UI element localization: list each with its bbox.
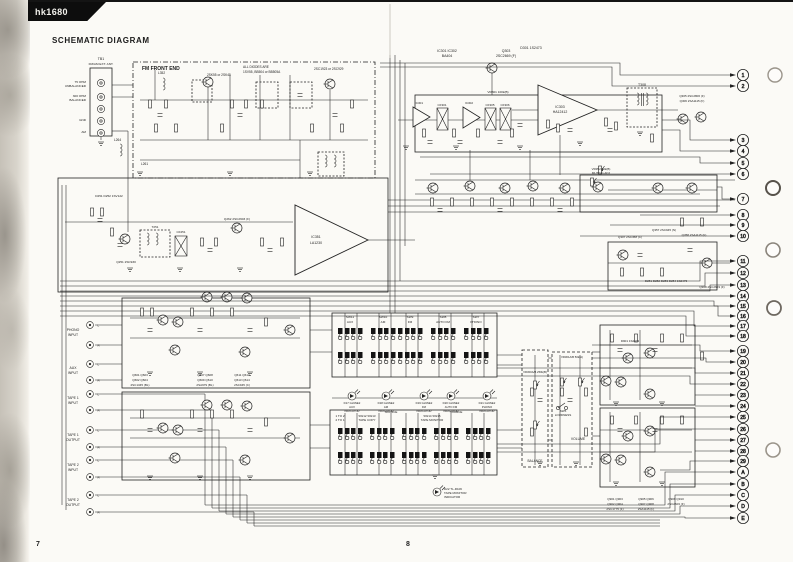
label-inputs-3-r: R <box>98 446 101 450</box>
label-switches-function-3-name: AUTO FM <box>436 320 450 324</box>
connector-label-16: 16 <box>740 314 746 320</box>
connector-label-11: 11 <box>740 259 745 265</box>
label-switches-copy_name: TAPE COPY <box>359 418 376 422</box>
label-am_section-diodes: D251 D252 1SV122 <box>95 194 123 198</box>
label-detector-muting_2: MUTING ADJ <box>592 171 611 175</box>
label-inputs-3-l: L <box>98 429 100 433</box>
connector-label-20: 20 <box>740 360 746 366</box>
components-layer <box>87 63 782 515</box>
page-number-left: 7 <box>36 541 40 548</box>
label-if_section-filters-1: CF305 <box>485 103 494 107</box>
label-mpx-q_out_1: Q305 2SC2806 (F) <box>679 94 704 98</box>
label-if_section-q_part: 2SC2669 (F) <box>496 54 516 58</box>
label-tone_amp-groups-1-l3: 2SA1115 (F) <box>638 507 655 511</box>
connector-label-D: D <box>741 504 745 510</box>
label-controls-balance: BALANCE <box>528 459 543 463</box>
connector-label-29: 29 <box>740 459 746 465</box>
connector-label-26: 26 <box>740 427 746 433</box>
label-inputs-4-r: R <box>98 476 101 480</box>
label-inputs-4-n1: TAPE 2 <box>67 463 79 467</box>
punch-hole <box>766 443 780 457</box>
label-mpx-q_out_2: Q306 2SA1115 (F) <box>680 99 705 103</box>
label-if_section-filters-2: CF306 <box>500 103 509 107</box>
label-switches-tape_mark_2: 2 TO 1 <box>335 418 344 422</box>
label-controls-volume: VOLUME <box>571 437 586 441</box>
label-inputs-2-r: R <box>98 409 101 413</box>
label-preamp-groups-1-l1: Q607 Q608 <box>197 373 213 377</box>
label-inputs-3-n1: TAPE 1 <box>67 433 79 437</box>
label-controls-vr_volume: VR301A/B 50k(A) <box>561 355 583 359</box>
label-antenna-ref: TB1 <box>98 57 104 61</box>
label-am_section-q2: Q262 2SC2603 (F) <box>224 217 250 221</box>
connector-label-21: 21 <box>740 371 746 377</box>
label-switches-function-0-ref: SW11 <box>346 315 354 319</box>
label-switches-monitor_name: TAPE MONITOR <box>421 418 444 422</box>
punch-hole <box>766 243 780 257</box>
label-switches-function-1-name: AM <box>381 320 386 324</box>
label-preamp-groups-2-l3: 2SC945 (C) <box>234 383 250 387</box>
label-tone_amp-groups-0-l1: Q901 Q903 <box>607 497 623 501</box>
label-if_section-vr: VR301 100k(B) <box>487 90 508 94</box>
wires-layer <box>60 4 735 526</box>
punch-hole <box>767 301 781 315</box>
scanned-schematic-page: hk1680 SCHEMATIC DIAGRAM FM FRONT END2SK… <box>0 0 793 562</box>
label-antenna-name: FM/AM EXT. ANT. <box>89 62 114 66</box>
label-inputs-4-l: L <box>98 459 100 463</box>
label-preamp-groups-2-l2: Q613 Q614 <box>234 378 250 382</box>
label-indicators-4-n2: INDICATOR <box>479 409 494 413</box>
connector-label-18: 18 <box>740 334 746 340</box>
label-switches-function-2-name: FM <box>408 320 413 324</box>
label-if_section-ic2: IC302 <box>465 101 473 105</box>
connector-label-17: 17 <box>740 324 746 330</box>
label-tone_amp-groups-0-l3: 2SC1775 (F) <box>606 507 623 511</box>
label-am_section-q1: Q251 2SC930 <box>116 260 136 264</box>
antenna-terminal-icon <box>97 79 104 86</box>
label-inputs-5-n1: TAPE 2 <box>67 498 79 502</box>
label-preamp-groups-0-l3: 2SC1345 (BL) <box>130 383 149 387</box>
label-antenna-terminals-1-l2: BALANCED <box>69 98 86 102</box>
connector-label-3: 3 <box>742 138 745 144</box>
opamp-triangle-icon <box>295 205 368 275</box>
label-inputs-2-l: L <box>98 393 100 397</box>
label-preamp-groups-2-l1: Q611 Q612 <box>234 373 250 377</box>
connector-label-12: 12 <box>740 271 746 277</box>
label-front_end-coil_2: L264 <box>114 138 121 142</box>
label-inputs-1-n2: INPUT <box>68 371 78 375</box>
connector-label-4: 4 <box>742 149 745 155</box>
label-inputs-1-r: R <box>98 379 101 383</box>
label-tone_amp-d: D901 1S2473 <box>621 339 640 343</box>
connector-label-2: 2 <box>742 84 745 90</box>
label-tone_amp-groups-1-l2: Q907 Q908 <box>638 502 654 506</box>
label-preamp-groups-0-l2: Q602 Q604 <box>132 378 148 382</box>
label-antenna-terminals-4-l1: AM <box>81 130 86 134</box>
label-indicators-1-n2: INDICATOR <box>378 409 393 413</box>
connector-label-14: 14 <box>740 294 746 300</box>
connector-label-C: C <box>741 493 745 499</box>
label-inputs-0-r: R <box>98 344 101 348</box>
label-fm_if-ic_part: LA1230 <box>310 241 322 245</box>
label-detector-q4: Q358 2SA1115 (F) <box>682 233 707 237</box>
label-controls-vr_balance: VR300A/B 250k(B) <box>523 370 547 374</box>
label-antenna-terminals-3-l1: GND <box>79 118 87 122</box>
connector-label-13: 13 <box>740 283 746 289</box>
connector-label-8: 8 <box>742 213 745 219</box>
label-tone_amp-groups-2-l1: Q909 Q910 <box>668 497 684 501</box>
connector-label-5: 5 <box>742 161 745 167</box>
label-indicators-2-n2: INDICATOR <box>416 409 431 413</box>
label-am_section-t1: T251 <box>152 225 159 229</box>
label-antenna-terminals-0-l2: UNBALANCED <box>65 84 87 88</box>
label-detector-q1: Q307 2SC458 (C) <box>618 235 642 239</box>
label-if_section-heading_1: IC301 IC302 <box>437 49 457 53</box>
opamp-triangle-icon <box>413 107 430 127</box>
connector-label-27: 27 <box>740 438 746 444</box>
label-if_section-q: Q303 <box>502 49 511 53</box>
label-indicators-5-n2: INDICATOR <box>444 495 461 499</box>
antenna-terminal-icon <box>97 105 104 112</box>
label-fm_if-ic_ref: IC351 <box>311 235 320 239</box>
label-if_section-ic1: IC301 <box>415 101 423 105</box>
connector-label-28: 28 <box>740 449 746 455</box>
label-preamp-groups-1-l3: 2SA979 (BL) <box>196 383 213 387</box>
connector-label-25: 25 <box>740 415 746 421</box>
label-tone_amp-groups-0-l2: Q902 Q904 <box>607 502 623 506</box>
label-if_section-filters-0: CF301 <box>437 103 446 107</box>
connector-label-7: 7 <box>742 197 745 203</box>
label-switches-loudness_name: LOUDNESS <box>555 413 572 417</box>
label-inputs-4-n2: INPUT <box>68 468 78 472</box>
label-switches-function-0-name: AUX <box>347 320 353 324</box>
connector-label-22: 22 <box>740 382 746 388</box>
label-inputs-0-n1: PHONO <box>67 328 80 332</box>
label-inputs-5-l: L <box>98 494 100 498</box>
label-switches-function-2-ref: SW9 <box>407 315 414 319</box>
label-preamp-groups-0-l1: Q601 Q603 <box>132 373 148 377</box>
label-front_end-diode_note_1: ALL DIODES ARE <box>243 65 269 69</box>
label-inputs-1-n1: AUX <box>70 366 78 370</box>
label-inputs-0-n2: INPUT <box>68 333 78 337</box>
label-am_section-filter: CF251 <box>176 230 185 234</box>
connector-label-19: 19 <box>740 349 746 355</box>
label-inputs-0-l: L <box>98 324 100 328</box>
label-if_section-heading_2: BA404 <box>442 54 453 58</box>
connector-label-10: 10 <box>740 234 746 240</box>
label-inputs-2-n1: TAPE 1 <box>67 396 79 400</box>
antenna-terminal-icon <box>97 129 104 136</box>
label-inputs-2-n2: INPUT <box>68 401 78 405</box>
label-front_end-coil_1: L352 <box>158 71 165 75</box>
label-indicators-3-n2: INDICATOR <box>443 409 458 413</box>
antenna-terminal-icon <box>97 93 104 100</box>
label-tone_amp-groups-1-l1: Q905 Q906 <box>638 497 654 501</box>
label-switches-function-4-ref: SW7 <box>473 315 480 319</box>
punch-hole <box>768 68 782 82</box>
label-inputs-1-l: L <box>98 363 100 367</box>
label-front_end-diode_note_2: 1SV55, BB504 or BB505A <box>243 70 281 74</box>
label-switches-function-3-ref: SW8 <box>440 315 447 319</box>
connector-label-15: 15 <box>740 304 746 310</box>
label-inputs-5-n2: OUTPUT <box>66 503 80 507</box>
connector-label-23: 23 <box>740 393 746 399</box>
label-inputs-3-n2: OUTPUT <box>66 438 80 442</box>
label-front_end-coil_3: L261 <box>141 162 148 166</box>
connector-label-9: 9 <box>742 223 745 229</box>
label-detector-q3: Q357 2SC945 (N) <box>652 228 676 232</box>
label-mpx-ic_ref: IC303 <box>555 105 564 109</box>
label-switches-function-4-name: PHONO <box>470 320 482 324</box>
antenna-terminal-icon <box>97 117 104 124</box>
label-front_end-tr_note: 2SC1923 or 2SC929 <box>314 67 344 71</box>
page-number-right: 8 <box>406 541 410 548</box>
label-preamp-groups-1-l2: Q609 Q610 <box>197 378 213 382</box>
connector-label-1: 1 <box>742 73 745 79</box>
connector-label-6: 6 <box>742 172 745 178</box>
schematic-drawing: FM FRONT END2SK55 or 2SK452SC1923 or 2SC… <box>0 0 793 562</box>
label-front_end-fet_note: 2SK55 or 2SK45 <box>207 73 231 77</box>
opamp-triangle-icon <box>463 107 480 128</box>
connector-label-24: 24 <box>740 404 746 410</box>
label-inputs-5-r: R <box>98 511 101 515</box>
punch-hole <box>766 181 780 195</box>
label-mpx-transformer: T308 <box>638 83 646 87</box>
label-if_section-d: D301 1S2473 <box>520 46 541 50</box>
label-switches-function-1-ref: SW10 <box>379 315 388 319</box>
label-detector-q2: Q308 2SC2603 (F) <box>699 285 724 289</box>
label-mpx-ic_part: HA12412 <box>553 110 568 114</box>
label-indicators-0-n2: INDICATOR <box>344 409 359 413</box>
